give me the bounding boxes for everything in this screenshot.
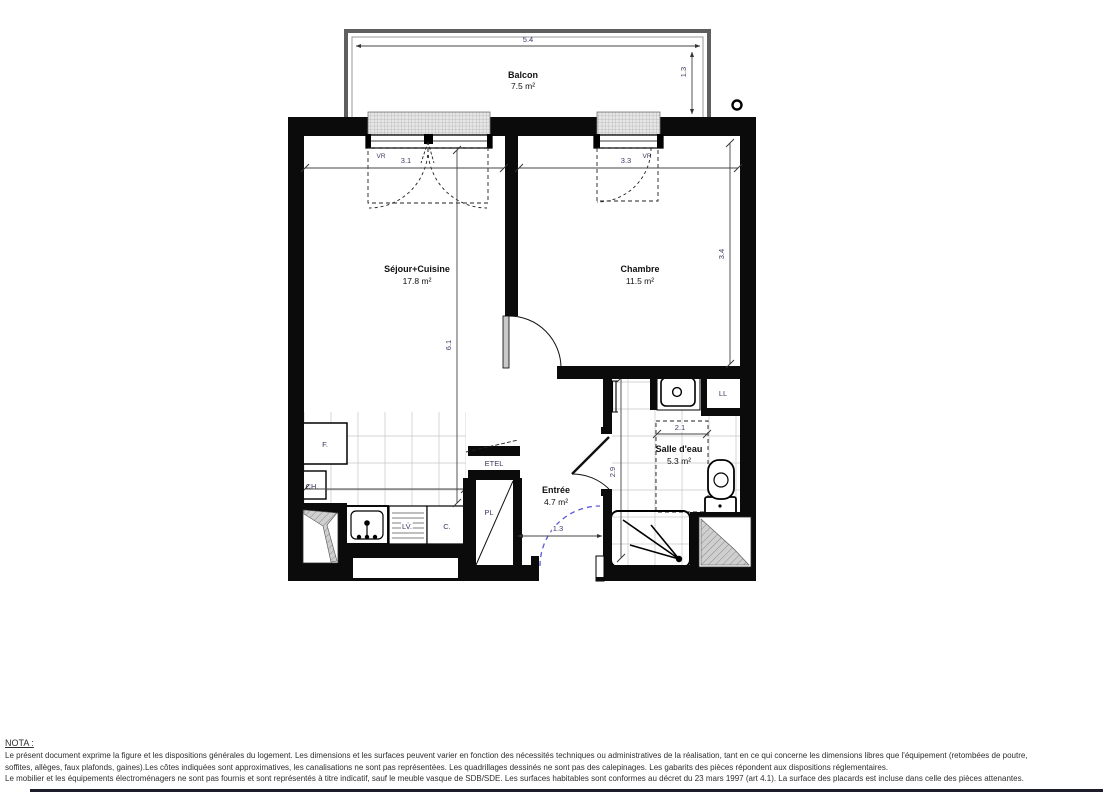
nota-line-2: soffites, allèges, faux plafonds, gaines… <box>5 762 1103 774</box>
cooker-label: C. <box>443 522 451 531</box>
sink-drain <box>364 520 370 526</box>
sejour-area: 17.8 m² <box>403 276 432 286</box>
nota-line-1: Le présent document exprime la figure et… <box>5 750 1103 762</box>
balcony-area: 7.5 m² <box>511 81 535 91</box>
wall-right <box>740 117 756 581</box>
fridge-label: F. <box>322 440 328 449</box>
dim-chambre-window: 3.3 <box>621 156 631 165</box>
balcony-name: Balcon <box>508 70 538 80</box>
dim-balcony-depth: 1.3 <box>679 67 688 77</box>
dim-balcony-width: 5.4 <box>523 35 533 44</box>
bathroom-door-leaf <box>572 437 609 474</box>
dim-entrance-door: 1.3 <box>553 524 563 533</box>
wall-sejour-chambre <box>505 136 518 316</box>
roller-shutter-label: VR <box>376 153 385 160</box>
entrance-door-post <box>531 556 539 581</box>
window-swing-right <box>428 149 487 208</box>
dim-bathroom-width: 2.1 <box>675 423 685 432</box>
bathroom-door-swing <box>572 474 609 489</box>
chambre-name: Chambre <box>620 264 659 274</box>
sejour-name: Séjour+Cuisine <box>384 264 450 274</box>
nota-block: NOTA : Le présent document exprime la fi… <box>5 738 1103 785</box>
dim-bathroom-depth: 2.9 <box>608 467 617 477</box>
entree-name: Entrée <box>542 485 570 495</box>
survey-marker-circle <box>733 101 742 110</box>
bottom-rule <box>30 789 1103 792</box>
closet-label: PL <box>484 508 493 517</box>
wall-chambre-bathroom <box>565 366 756 379</box>
window-sill-hatch <box>368 112 490 135</box>
dishwasher-label: LV. <box>402 522 412 531</box>
chambre-door-swing <box>509 316 561 368</box>
basin-drain <box>673 388 682 397</box>
chambre-area: 11.5 m² <box>626 276 654 286</box>
window-sejour: VR <box>366 112 492 208</box>
chambre-door-leaf <box>503 316 509 368</box>
floor-plan-svg: 5.4 1.3 Balcon 7.5 m² F. CH. LV. C. <box>0 0 1105 800</box>
window-frame <box>594 135 663 148</box>
dim-sejour-window: 3.1 <box>401 156 411 165</box>
entree-area: 4.7 m² <box>544 497 568 507</box>
dim-chambre-depth: 3.4 <box>717 249 726 259</box>
closet-diagonal <box>476 481 513 565</box>
balcony: 5.4 1.3 Balcon 7.5 m² <box>346 31 709 117</box>
wall-entree-bathroom-upper <box>603 373 612 433</box>
electrical-panel-label: ETEL <box>485 459 504 468</box>
wall-top-middle <box>490 117 597 136</box>
wall-bottom-mid <box>472 565 538 581</box>
window-sill-hatch <box>597 112 660 135</box>
floor-plan-page: 5.4 1.3 Balcon 7.5 m² F. CH. LV. C. <box>0 0 1105 800</box>
salle-eau-name: Salle d'eau <box>656 444 703 454</box>
salle-eau-area: 5.3 m² <box>667 456 691 466</box>
nota-title: NOTA : <box>5 738 1103 748</box>
shower-drain <box>676 556 682 562</box>
nota-line-3: Le mobilier et les équipements électromé… <box>5 773 1103 785</box>
washing-machine-label: LL <box>719 389 727 398</box>
bottom-wall-recess <box>353 558 458 578</box>
dim-sejour-length: 6.1 <box>444 340 453 350</box>
